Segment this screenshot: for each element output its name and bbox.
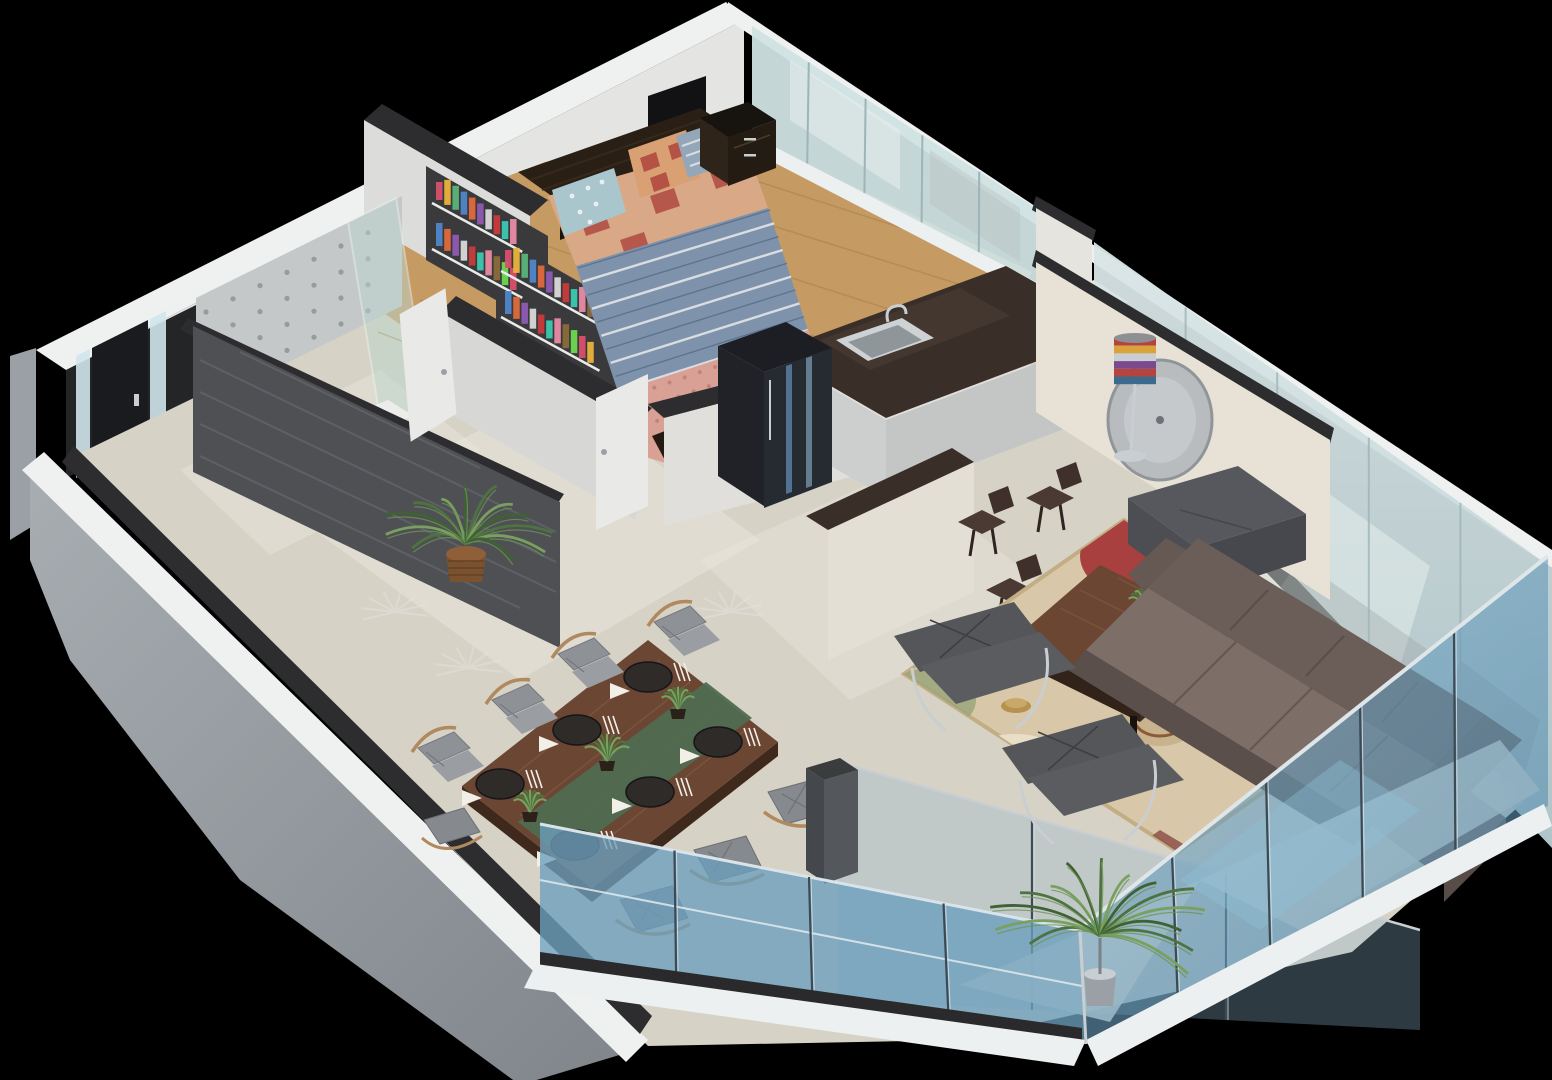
- bathroom-door-handle: [441, 369, 447, 375]
- concrete-dot: [230, 296, 235, 301]
- dinner-plate: [476, 769, 524, 799]
- concrete-dot: [203, 309, 208, 314]
- concrete-dot: [230, 322, 235, 327]
- apartment-3d-floorplan: [0, 0, 1552, 1080]
- lamp-stripe: [1114, 346, 1156, 354]
- concrete-dot: [338, 243, 343, 248]
- glass-mullion: [922, 135, 923, 223]
- book-spine: [554, 277, 561, 297]
- book-spine: [513, 248, 520, 273]
- knit-dot: [683, 375, 687, 379]
- book-spine: [571, 289, 578, 307]
- book-spine: [502, 221, 509, 239]
- knit-dot: [713, 365, 717, 369]
- book-spine: [485, 209, 492, 229]
- book-spine: [452, 235, 459, 256]
- concrete-dot: [311, 309, 316, 314]
- fridge-glass-stripe-1: [786, 364, 792, 494]
- lamp-stripe: [1114, 377, 1156, 385]
- entry-door-handle: [134, 394, 139, 406]
- book-spine: [505, 291, 512, 314]
- concrete-dot: [311, 335, 316, 340]
- concrete-dot: [284, 270, 289, 275]
- lamp-shade-top: [1114, 333, 1156, 343]
- fridge-glass-stripe-2: [806, 356, 812, 488]
- book-spine: [538, 315, 545, 334]
- book-spine: [563, 324, 570, 348]
- book-spine: [452, 186, 459, 210]
- book-spine: [505, 250, 512, 268]
- book-spine: [538, 266, 545, 288]
- book-spine: [521, 303, 528, 324]
- book-spine: [546, 271, 553, 292]
- book-spine: [554, 318, 561, 343]
- lamp-drum-shade: [1114, 333, 1156, 384]
- concrete-dot: [338, 269, 343, 274]
- book-spine: [571, 330, 578, 353]
- concrete-dot: [257, 309, 262, 314]
- book-spine: [469, 198, 476, 220]
- balustrade-post: [1454, 631, 1455, 853]
- lamp-base: [1114, 450, 1146, 462]
- concrete-dot: [284, 348, 289, 353]
- dinner-plate: [626, 777, 674, 807]
- book-spine: [587, 342, 594, 363]
- book-spine: [494, 215, 501, 234]
- book-spine: [477, 203, 484, 224]
- palm-pot-rim: [446, 546, 486, 562]
- corner-pillar: [806, 758, 858, 884]
- book-spine: [444, 229, 451, 251]
- book-spine: [477, 252, 484, 270]
- concrete-dot: [284, 296, 289, 301]
- plant-pot: [670, 709, 686, 719]
- refrigerator: [718, 322, 832, 508]
- book-spine: [436, 182, 443, 200]
- dinner-plate: [694, 727, 742, 757]
- lamp-stripe: [1114, 369, 1156, 377]
- concrete-dot: [257, 283, 262, 288]
- mirror-center: [1156, 416, 1164, 424]
- lamp-stripe: [1114, 353, 1156, 361]
- book-spine: [510, 219, 517, 244]
- knit-dot: [655, 419, 659, 423]
- knit-dot: [652, 386, 656, 390]
- book-spine: [546, 320, 553, 338]
- lamp-stripe: [1114, 361, 1156, 369]
- concrete-dot: [311, 283, 316, 288]
- knit-dot: [698, 370, 702, 374]
- concrete-dot: [338, 321, 343, 326]
- book-spine: [461, 192, 468, 215]
- book-spine: [530, 260, 537, 283]
- book-spine: [494, 256, 501, 280]
- book-spine: [485, 250, 492, 275]
- concrete-dot: [311, 257, 316, 262]
- book-spine: [530, 309, 537, 329]
- bedroom-door-handle: [601, 449, 607, 455]
- plant-pot: [599, 761, 615, 771]
- concrete-dot: [257, 335, 262, 340]
- knit-dot: [707, 384, 711, 388]
- book-spine: [521, 254, 528, 278]
- book-spine: [436, 223, 443, 246]
- concrete-dot: [284, 322, 289, 327]
- dinner-plate: [624, 662, 672, 692]
- glass-mullion: [864, 99, 865, 193]
- dinner-plate: [553, 715, 601, 745]
- book-spine: [461, 241, 468, 261]
- book-spine: [513, 297, 520, 319]
- book-spine: [469, 247, 476, 266]
- book-spine: [444, 180, 451, 205]
- floorplan-render: [0, 0, 1552, 1080]
- concrete-dot: [338, 295, 343, 300]
- plant-pot: [522, 812, 538, 822]
- book-spine: [563, 283, 570, 302]
- knit-dot: [668, 381, 672, 385]
- book-spine: [579, 336, 586, 358]
